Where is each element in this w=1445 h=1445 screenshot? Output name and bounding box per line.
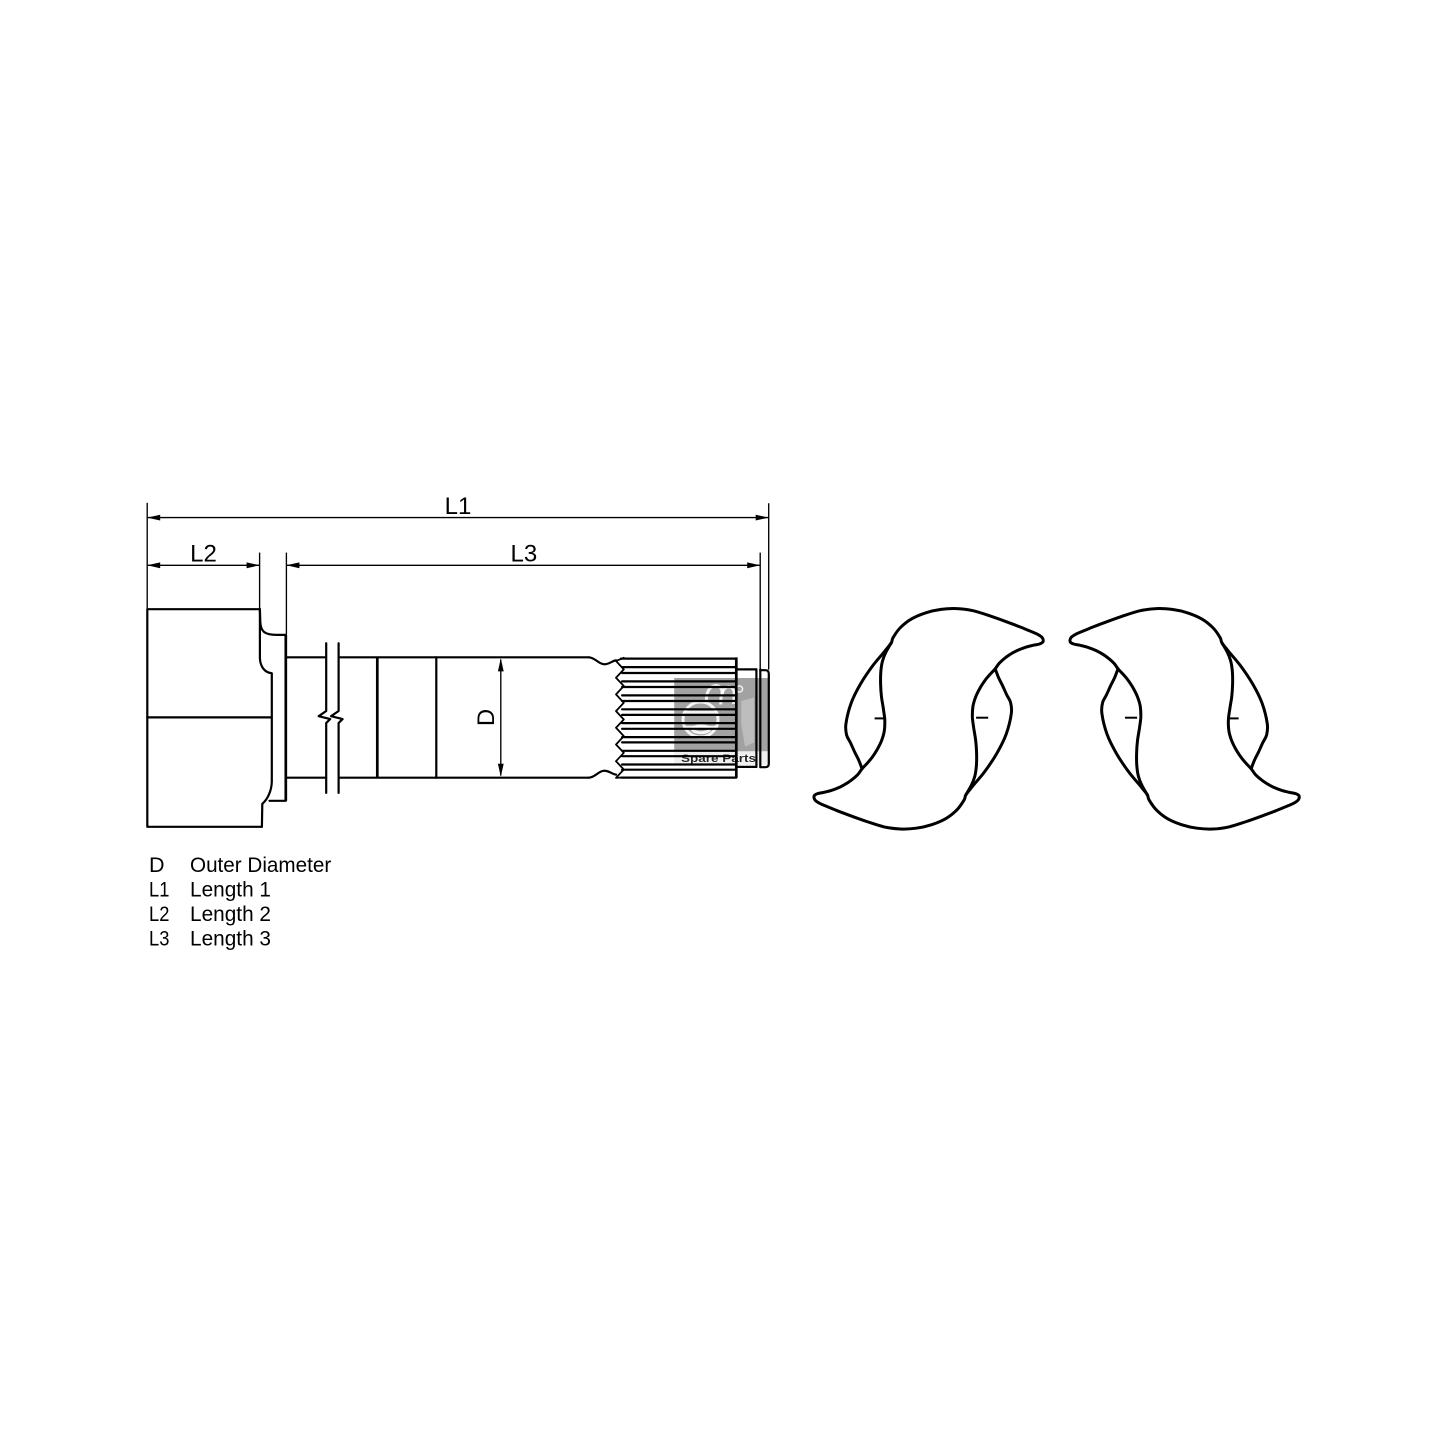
svg-text:L2: L2 [149, 902, 169, 926]
svg-text:Outer Diameter: Outer Diameter [190, 853, 331, 877]
svg-text:L3: L3 [511, 541, 538, 568]
svg-text:D: D [149, 853, 165, 877]
svg-text:Length 2: Length 2 [190, 902, 271, 926]
svg-text:Spare Parts: Spare Parts [681, 753, 756, 765]
svg-text:Length 1: Length 1 [190, 878, 271, 902]
svg-text:L1: L1 [445, 493, 472, 520]
svg-text:L1: L1 [149, 878, 169, 902]
svg-text:L3: L3 [149, 927, 169, 951]
svg-text:L2: L2 [190, 541, 217, 568]
svg-text:D: D [473, 709, 500, 726]
svg-text:Length 3: Length 3 [190, 927, 271, 951]
